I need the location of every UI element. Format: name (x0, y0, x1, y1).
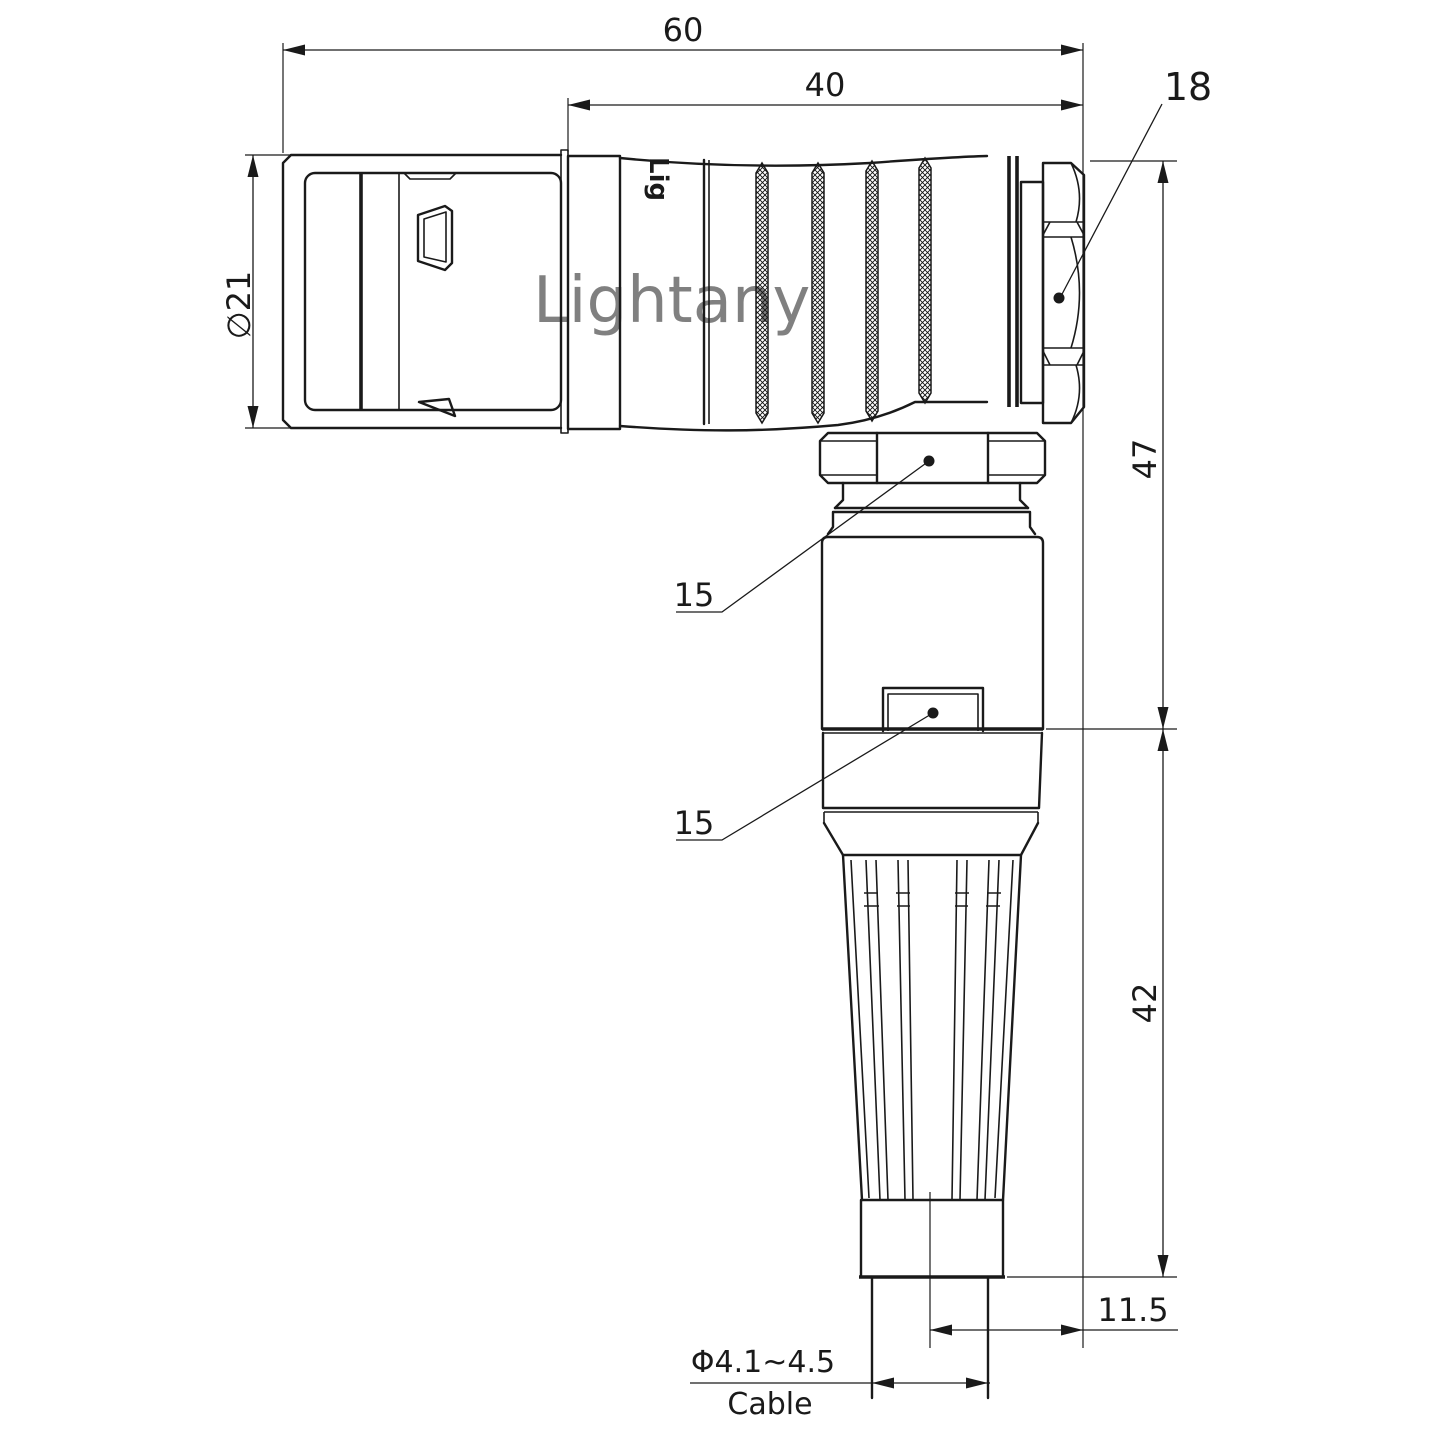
leader-15a-dot (924, 456, 935, 467)
hex-facet-arcs (1071, 163, 1080, 423)
knurl-band-3 (866, 161, 878, 421)
elbow-steps (828, 483, 1035, 534)
cable-sleeve (859, 1192, 1005, 1398)
strain-relief-web (864, 893, 1001, 906)
strain-relief-inner-curve (851, 860, 1013, 1198)
coupling-hex-nut-side (1021, 163, 1084, 423)
dim-phi21-text: ∅21 (220, 271, 258, 340)
dim-cable-diameter: Φ4.1~4.5 Cable (690, 1345, 990, 1422)
dim-42-text: 42 (1126, 983, 1164, 1024)
nut-washer (1021, 182, 1043, 403)
latch-window-inner (424, 212, 446, 262)
hex-nut-outline (1043, 163, 1084, 423)
dim-rear-length: 40 (568, 66, 1083, 152)
dim-front-diameter: ∅21 (220, 155, 312, 428)
step-ring-1 (835, 483, 1028, 508)
dim-cable-dia-text: Φ4.1~4.5 (691, 1345, 835, 1380)
hex-facet-lower (1043, 348, 1084, 365)
body-outline (822, 537, 1043, 729)
sleeve-outline (861, 1200, 1003, 1277)
engineering-drawing-page: Lightany Lig (0, 0, 1440, 1440)
plug-front-shell (283, 155, 561, 428)
dim-47-text: 47 (1126, 439, 1164, 480)
knurl-band-2 (812, 163, 824, 423)
knurl-band-4 (919, 158, 931, 403)
strain-relief (824, 823, 1038, 1200)
leader-backnut-15: 15 (674, 456, 935, 615)
main-body (822, 537, 1043, 823)
leader-15b-line (676, 713, 933, 840)
dim-18-text: 18 (1164, 65, 1212, 109)
boot-top-edge (620, 156, 987, 166)
strain-relief-fingers (866, 860, 999, 1200)
dim-40-text: 40 (805, 66, 846, 104)
dim-11-5-text: 11.5 (1097, 1291, 1168, 1329)
leader-15b-dot (928, 708, 939, 719)
leader-15b-text: 15 (674, 804, 715, 842)
leader-18-dot (1054, 293, 1065, 304)
dim-60-text: 60 (663, 11, 704, 49)
latch-bottom-wedge (419, 399, 455, 416)
boot-bottom-edge (620, 402, 987, 430)
leader-15a-text: 15 (674, 576, 715, 614)
hex-facet-upper (1043, 222, 1084, 237)
dim-overall-length: 60 (283, 11, 1083, 1348)
knurl-band-1 (756, 163, 768, 423)
front-shell-envelope (283, 155, 561, 428)
part-logo-text: Lig (643, 157, 673, 201)
dim-cable-offset: 11.5 (930, 1291, 1178, 1336)
leader-18-line (1060, 104, 1162, 298)
strain-relief-shoulder (824, 823, 1038, 855)
cable-label-text: Cable (727, 1387, 812, 1422)
front-shell-sleeve (305, 173, 561, 410)
dim-elbow-height: 47 (1046, 161, 1177, 729)
body-shoulder (824, 812, 1038, 823)
connector-drawing: Lightany Lig (0, 0, 1440, 1440)
body-lower-section (823, 733, 1042, 808)
watermark-text: Lightany (533, 264, 810, 338)
